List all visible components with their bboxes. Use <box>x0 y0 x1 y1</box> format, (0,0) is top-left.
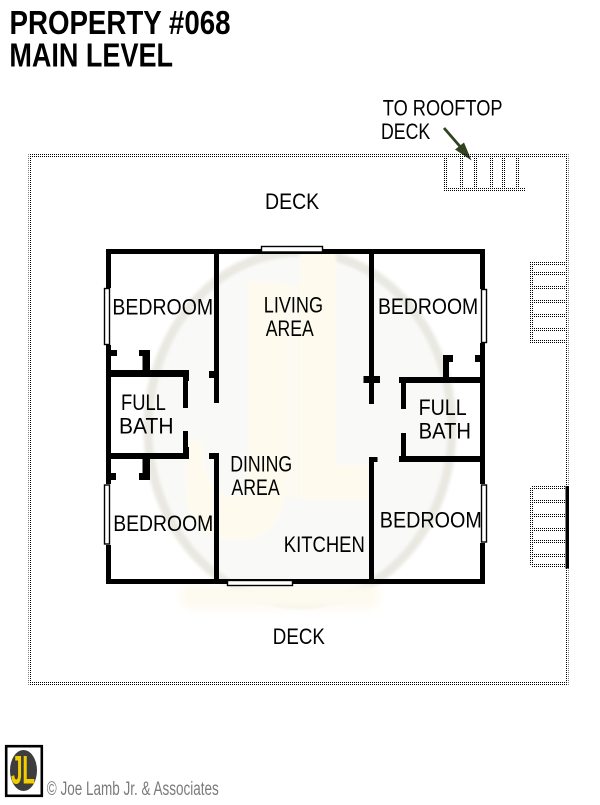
svg-text:DECK: DECK <box>265 189 319 214</box>
svg-text:BATH: BATH <box>119 414 174 439</box>
svg-text:BEDROOM: BEDROOM <box>112 295 213 320</box>
svg-text:DECK: DECK <box>381 119 430 144</box>
svg-text:TO ROOFTOP: TO ROOFTOP <box>383 96 503 121</box>
svg-text:BATH: BATH <box>419 419 471 444</box>
svg-text:BEDROOM: BEDROOM <box>113 511 213 536</box>
svg-text:MAIN LEVEL: MAIN LEVEL <box>9 38 173 75</box>
svg-text:BEDROOM: BEDROOM <box>378 294 478 319</box>
svg-text:DECK: DECK <box>273 624 325 649</box>
svg-text:AREA: AREA <box>266 316 314 341</box>
svg-text:AREA: AREA <box>231 475 279 500</box>
svg-text:DINING: DINING <box>230 452 292 477</box>
svg-text:KITCHEN: KITCHEN <box>284 532 365 557</box>
svg-text:JL: JL <box>11 749 35 793</box>
svg-text:LIVING: LIVING <box>264 293 323 318</box>
svg-text:FULL: FULL <box>121 390 166 415</box>
svg-text:PROPERTY #068: PROPERTY #068 <box>10 5 231 42</box>
svg-text:FULL: FULL <box>419 395 467 420</box>
svg-text:BEDROOM: BEDROOM <box>380 507 482 532</box>
svg-text:© Joe Lamb Jr. & Associates: © Joe Lamb Jr. & Associates <box>47 779 219 800</box>
